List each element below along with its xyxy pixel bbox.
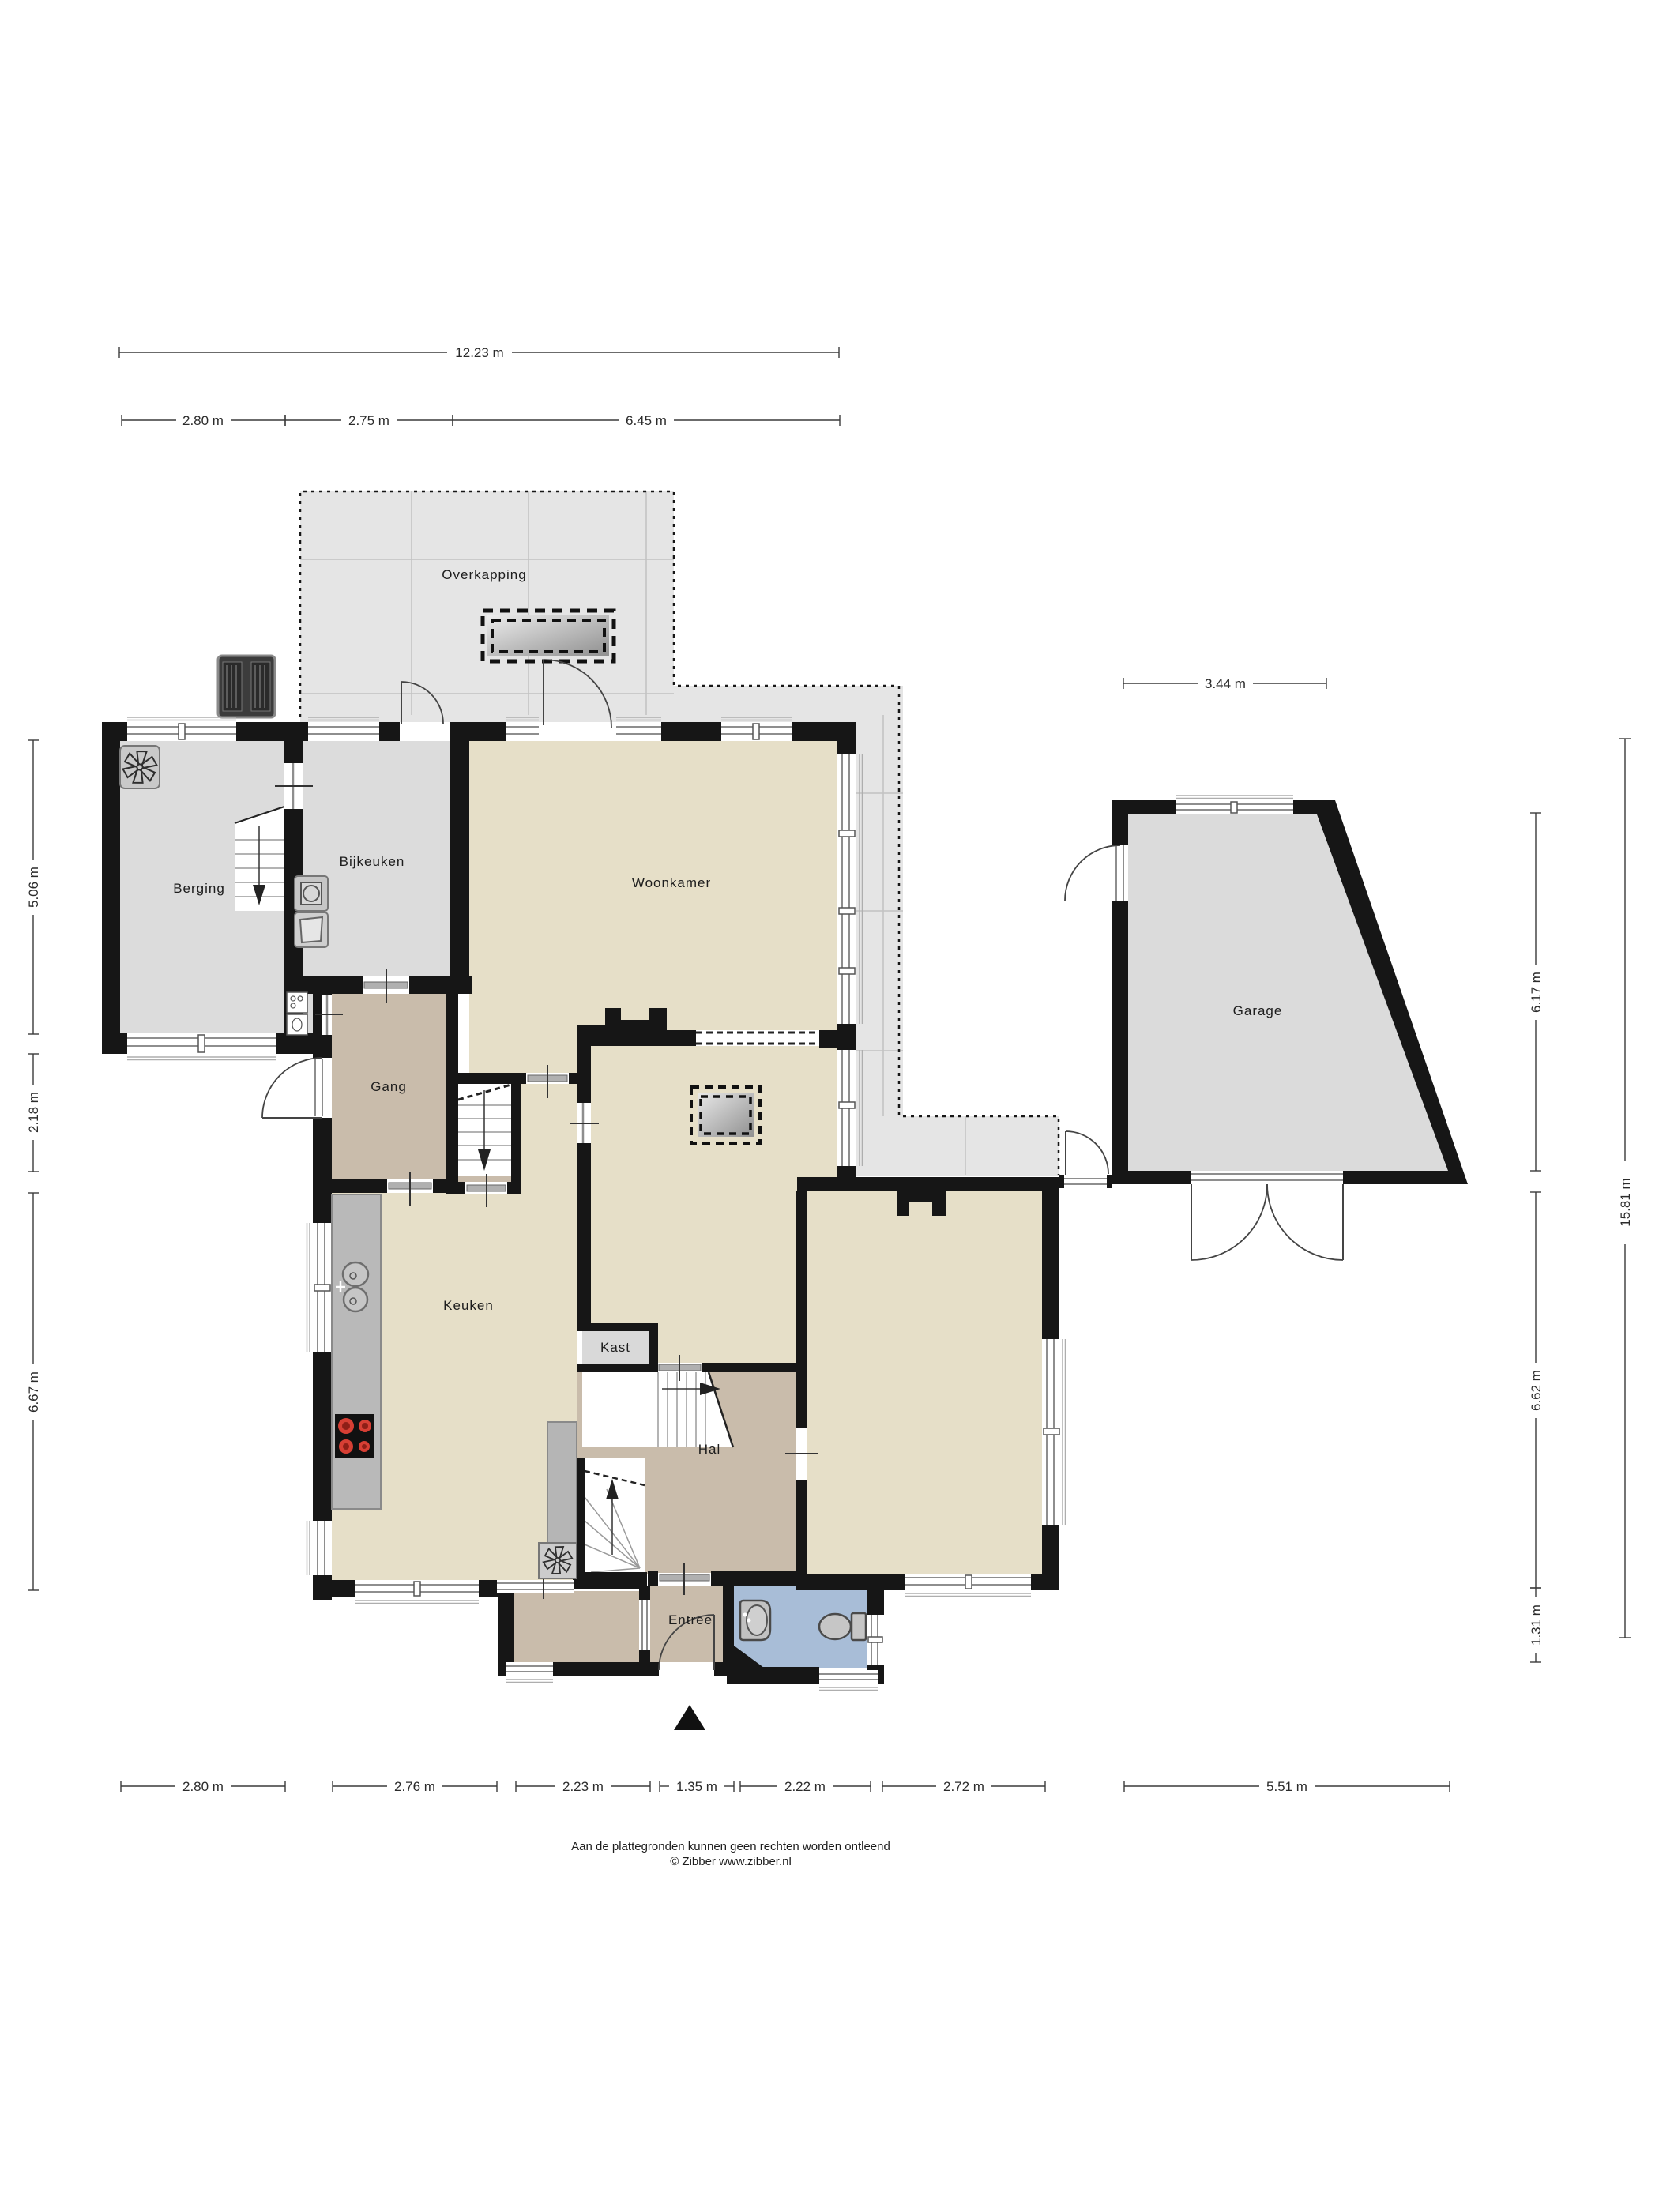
svg-text:6.17 m: 6.17 m [1529, 972, 1544, 1013]
svg-text:Hal: Hal [698, 1442, 721, 1457]
svg-text:2.75 m: 2.75 m [348, 413, 389, 428]
svg-text:6.45 m: 6.45 m [626, 413, 667, 428]
svg-text:1.31 m: 1.31 m [1529, 1604, 1544, 1646]
svg-text:5.06 m: 5.06 m [26, 867, 41, 908]
svg-text:Bijkeuken: Bijkeuken [340, 854, 405, 869]
svg-text:2.76 m: 2.76 m [394, 1779, 435, 1794]
svg-text:2.80 m: 2.80 m [182, 413, 224, 428]
svg-text:12.23 m: 12.23 m [455, 345, 503, 360]
svg-text:6.67 m: 6.67 m [26, 1371, 41, 1413]
svg-text:1.35 m: 1.35 m [676, 1779, 717, 1794]
svg-text:3.44 m: 3.44 m [1205, 676, 1246, 691]
svg-text:5.51 m: 5.51 m [1266, 1779, 1307, 1794]
svg-text:2.23 m: 2.23 m [562, 1779, 604, 1794]
svg-text:2.80 m: 2.80 m [182, 1779, 224, 1794]
svg-text:2.22 m: 2.22 m [784, 1779, 826, 1794]
svg-text:Berging: Berging [173, 881, 225, 896]
svg-text:Garage: Garage [1233, 1003, 1283, 1018]
svg-text:Keuken: Keuken [443, 1298, 494, 1313]
svg-text:Aan de plattegronden kunnen ge: Aan de plattegronden kunnen geen rechten… [571, 1840, 890, 1853]
svg-text:Overkapping: Overkapping [442, 567, 526, 582]
svg-text:© Zibber www.zibber.nl: © Zibber www.zibber.nl [670, 1855, 792, 1868]
svg-text:6.62 m: 6.62 m [1529, 1370, 1544, 1411]
svg-text:Entree: Entree [668, 1612, 713, 1627]
svg-text:15.81 m: 15.81 m [1618, 1178, 1633, 1226]
svg-text:Kast: Kast [600, 1340, 630, 1355]
svg-text:Woonkamer: Woonkamer [632, 875, 711, 890]
svg-text:2.18 m: 2.18 m [26, 1092, 41, 1133]
svg-text:2.72 m: 2.72 m [943, 1779, 984, 1794]
svg-text:Gang: Gang [371, 1079, 407, 1094]
